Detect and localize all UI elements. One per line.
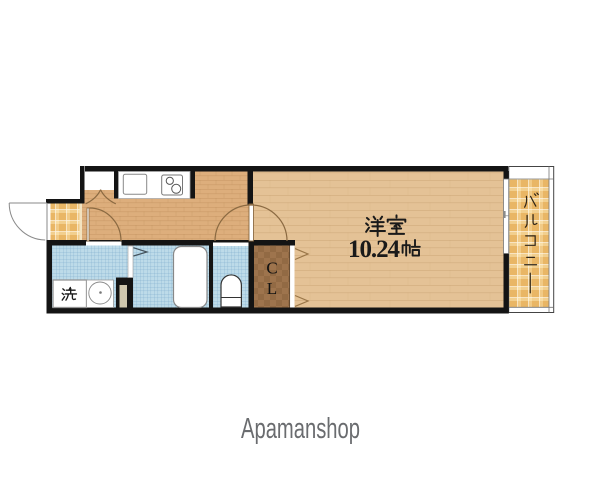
svg-text:10.24: 10.24 — [348, 236, 401, 263]
svg-text:L: L — [267, 279, 277, 298]
svg-text:Apamanshop: Apamanshop — [241, 413, 360, 445]
svg-text:C: C — [266, 259, 277, 278]
